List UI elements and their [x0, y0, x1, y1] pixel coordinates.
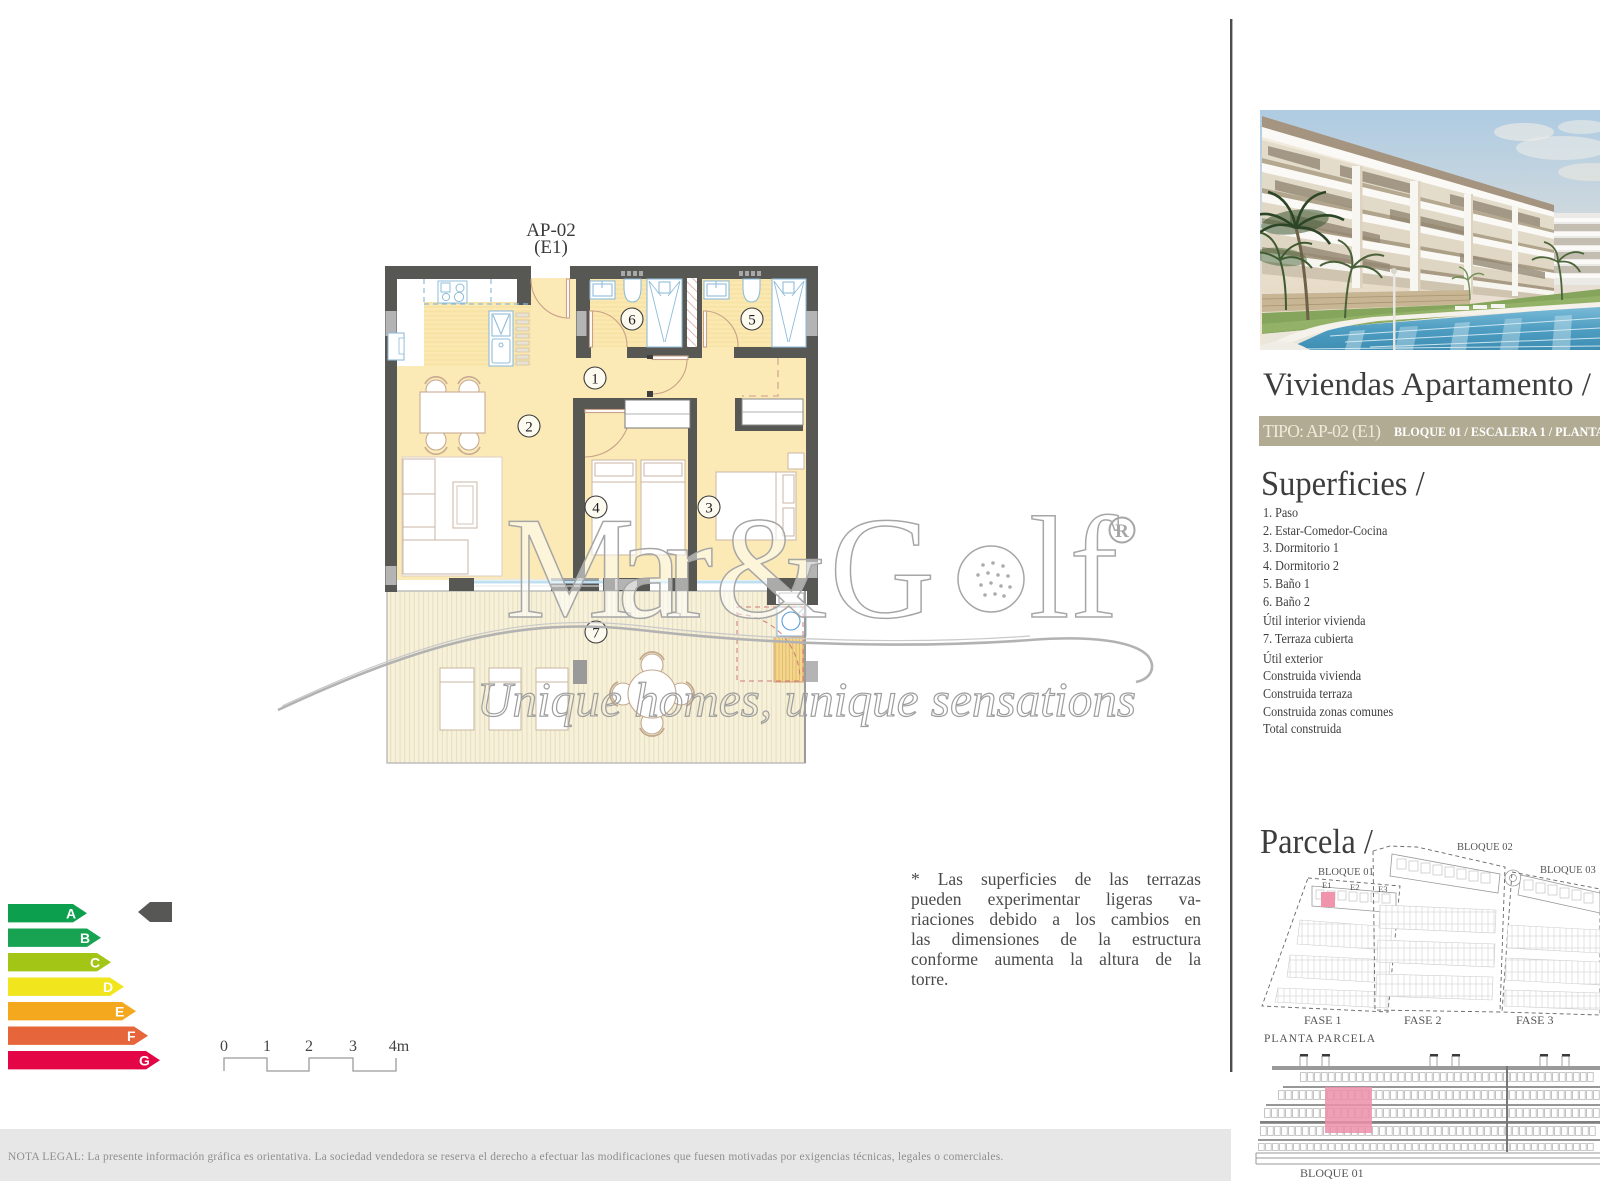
- svg-text:FASE 2: FASE 2: [1404, 1013, 1441, 1027]
- svg-text:A: A: [66, 906, 76, 922]
- svg-text:R: R: [1115, 521, 1129, 542]
- svg-text:6: 6: [628, 313, 636, 329]
- svg-text:FASE 1: FASE 1: [1304, 1013, 1341, 1027]
- svg-text:TIPO: AP-02 (E1): TIPO: AP-02 (E1): [1263, 421, 1381, 441]
- svg-text:E: E: [115, 1004, 124, 1020]
- svg-text:E3: E3: [1378, 884, 1387, 894]
- svg-text:BLOQUE 01 / ESCALERA 1 / PLAN: BLOQUE 01 / ESCALERA 1 / PLANTAS 1ª - 2ª…: [1394, 425, 1600, 439]
- svg-text:C: C: [90, 955, 100, 971]
- svg-text:4m: 4m: [389, 1038, 410, 1055]
- svg-text:0: 0: [220, 1038, 228, 1055]
- svg-text:E1: E1: [1322, 880, 1331, 890]
- svg-text:G: G: [139, 1053, 150, 1069]
- svg-text:2: 2: [305, 1038, 313, 1055]
- svg-text:BLOQUE 03: BLOQUE 03: [1540, 865, 1596, 876]
- svg-text:5: 5: [748, 313, 756, 329]
- svg-text:BLOQUE 01: BLOQUE 01: [1318, 867, 1374, 878]
- svg-text:D: D: [103, 979, 113, 995]
- svg-text:BLOQUE 01: BLOQUE 01: [1300, 1166, 1364, 1180]
- svg-text:3: 3: [349, 1038, 357, 1055]
- svg-text:F: F: [127, 1028, 136, 1044]
- svg-text:E2: E2: [1350, 882, 1359, 892]
- svg-text:Unique homes, unique sensation: Unique homes, unique sensations: [477, 672, 1136, 727]
- svg-text:B: B: [80, 930, 90, 946]
- svg-text:BLOQUE 02: BLOQUE 02: [1457, 842, 1513, 853]
- svg-text:1: 1: [591, 372, 599, 388]
- svg-text:lf: lf: [1029, 487, 1119, 649]
- svg-text:(E1): (E1): [534, 237, 568, 258]
- svg-text:PLANTA PARCELA: PLANTA PARCELA: [1264, 1033, 1376, 1045]
- svg-text:Mar & G: Mar & G: [505, 487, 935, 649]
- svg-text:1: 1: [263, 1038, 271, 1055]
- svg-text:2: 2: [525, 420, 533, 436]
- svg-text:FASE 3: FASE 3: [1516, 1013, 1553, 1027]
- svg-text:NOTA LEGAL: La presente inform: NOTA LEGAL: La presente información gráf…: [8, 1151, 1003, 1163]
